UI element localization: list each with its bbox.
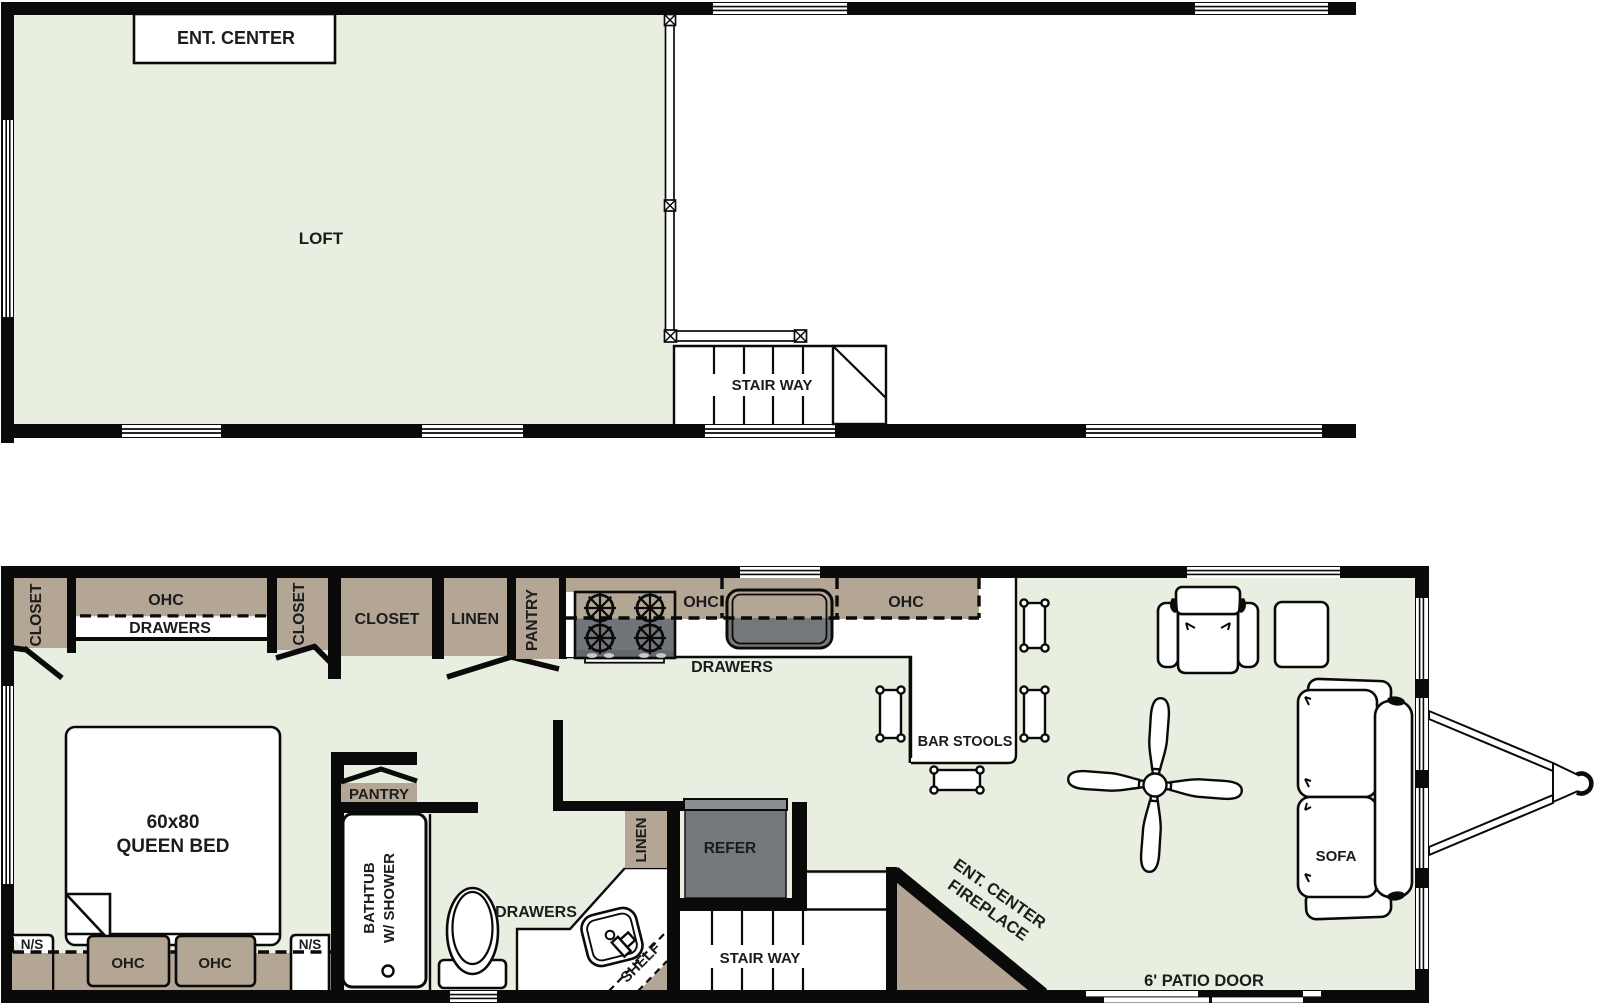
svg-text:OHC: OHC	[683, 594, 719, 611]
svg-text:DRAWERS: DRAWERS	[691, 659, 773, 676]
svg-text:PANTRY: PANTRY	[349, 786, 409, 803]
svg-text:60x80: 60x80	[147, 812, 200, 833]
svg-text:N/S: N/S	[299, 937, 322, 952]
svg-text:PANTRY: PANTRY	[524, 588, 541, 651]
svg-text:CLOSET: CLOSET	[355, 611, 420, 628]
svg-text:OHC: OHC	[148, 592, 184, 609]
svg-text:BAR STOOLS: BAR STOOLS	[918, 734, 1013, 750]
svg-text:CLOSET: CLOSET	[291, 582, 308, 645]
svg-text:OHC: OHC	[198, 955, 232, 972]
svg-text:6' PATIO DOOR: 6' PATIO DOOR	[1144, 972, 1264, 990]
svg-text:DRAWERS: DRAWERS	[495, 904, 577, 921]
svg-text:REFER: REFER	[704, 840, 757, 857]
svg-text:LINEN: LINEN	[633, 818, 650, 863]
svg-text:STAIR WAY: STAIR WAY	[720, 950, 801, 967]
svg-text:OHC: OHC	[888, 594, 924, 611]
svg-text:W/ SHOWER: W/ SHOWER	[381, 853, 398, 943]
svg-text:N/S: N/S	[21, 937, 44, 952]
svg-text:QUEEN BED: QUEEN BED	[117, 836, 230, 857]
svg-text:LOFT: LOFT	[299, 229, 344, 248]
svg-text:ENT. CENTER: ENT. CENTER	[177, 28, 295, 48]
svg-text:SOFA: SOFA	[1316, 848, 1357, 865]
svg-text:STAIR WAY: STAIR WAY	[732, 377, 813, 394]
svg-text:DRAWERS: DRAWERS	[129, 620, 211, 637]
svg-text:OHC: OHC	[111, 955, 145, 972]
svg-text:BATHTUB: BATHTUB	[361, 862, 378, 934]
svg-text:CLOSET: CLOSET	[28, 583, 45, 646]
svg-text:LINEN: LINEN	[451, 611, 499, 628]
